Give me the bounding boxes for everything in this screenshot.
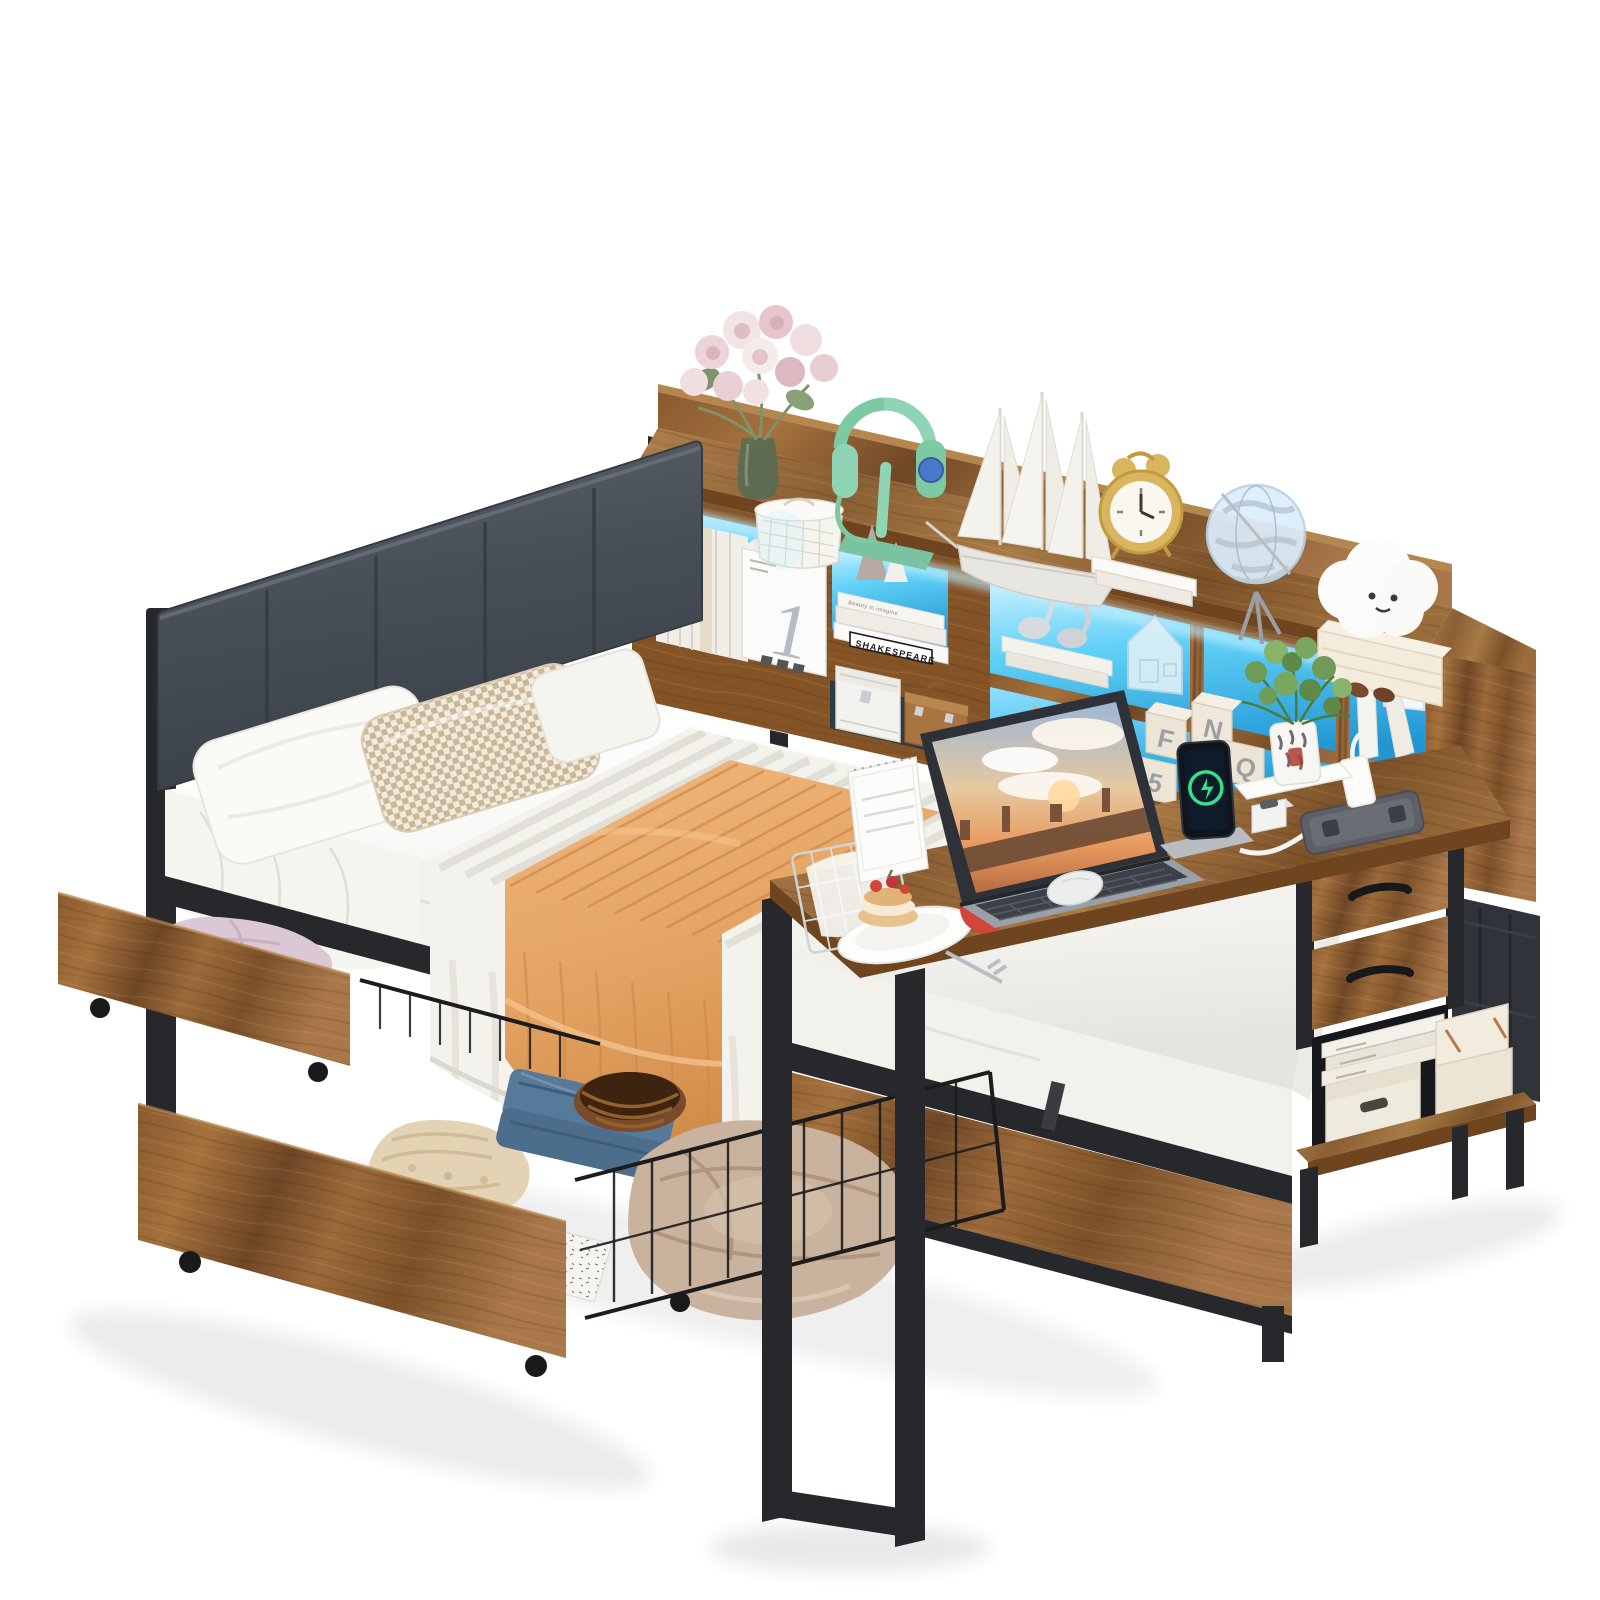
woven-bowl: [574, 1072, 686, 1132]
caster-wheel: [90, 998, 110, 1018]
drawer-shadow: [58, 1278, 661, 1522]
scene-canvas: 1 Beauty to imagine SHAKESPEARE: [0, 0, 1600, 1600]
caster-wheel: [525, 1355, 547, 1377]
spiral-notepad: [848, 757, 928, 883]
desk-leg-upright-left: [762, 893, 792, 1522]
storage-trunk: [836, 666, 900, 742]
tower-leg-3: [1452, 1124, 1468, 1200]
tower-leg-1: [1300, 1166, 1318, 1248]
wire-basket-with-lid: [754, 499, 843, 570]
outlet: [1388, 805, 1407, 824]
tower-leg-2: [1506, 1108, 1524, 1190]
product-photo-daybed-with-desk: 1 Beauty to imagine SHAKESPEARE: [0, 0, 1600, 1600]
caster-wheel: [308, 1062, 328, 1082]
desk-leg-upright-right: [895, 968, 925, 1547]
caster-wheel: [179, 1251, 201, 1273]
bed-foot-leg: [1262, 1306, 1284, 1362]
outlet: [1321, 819, 1340, 838]
caster-wheel: [670, 1292, 690, 1312]
desk-leg-shadow: [710, 1524, 990, 1572]
